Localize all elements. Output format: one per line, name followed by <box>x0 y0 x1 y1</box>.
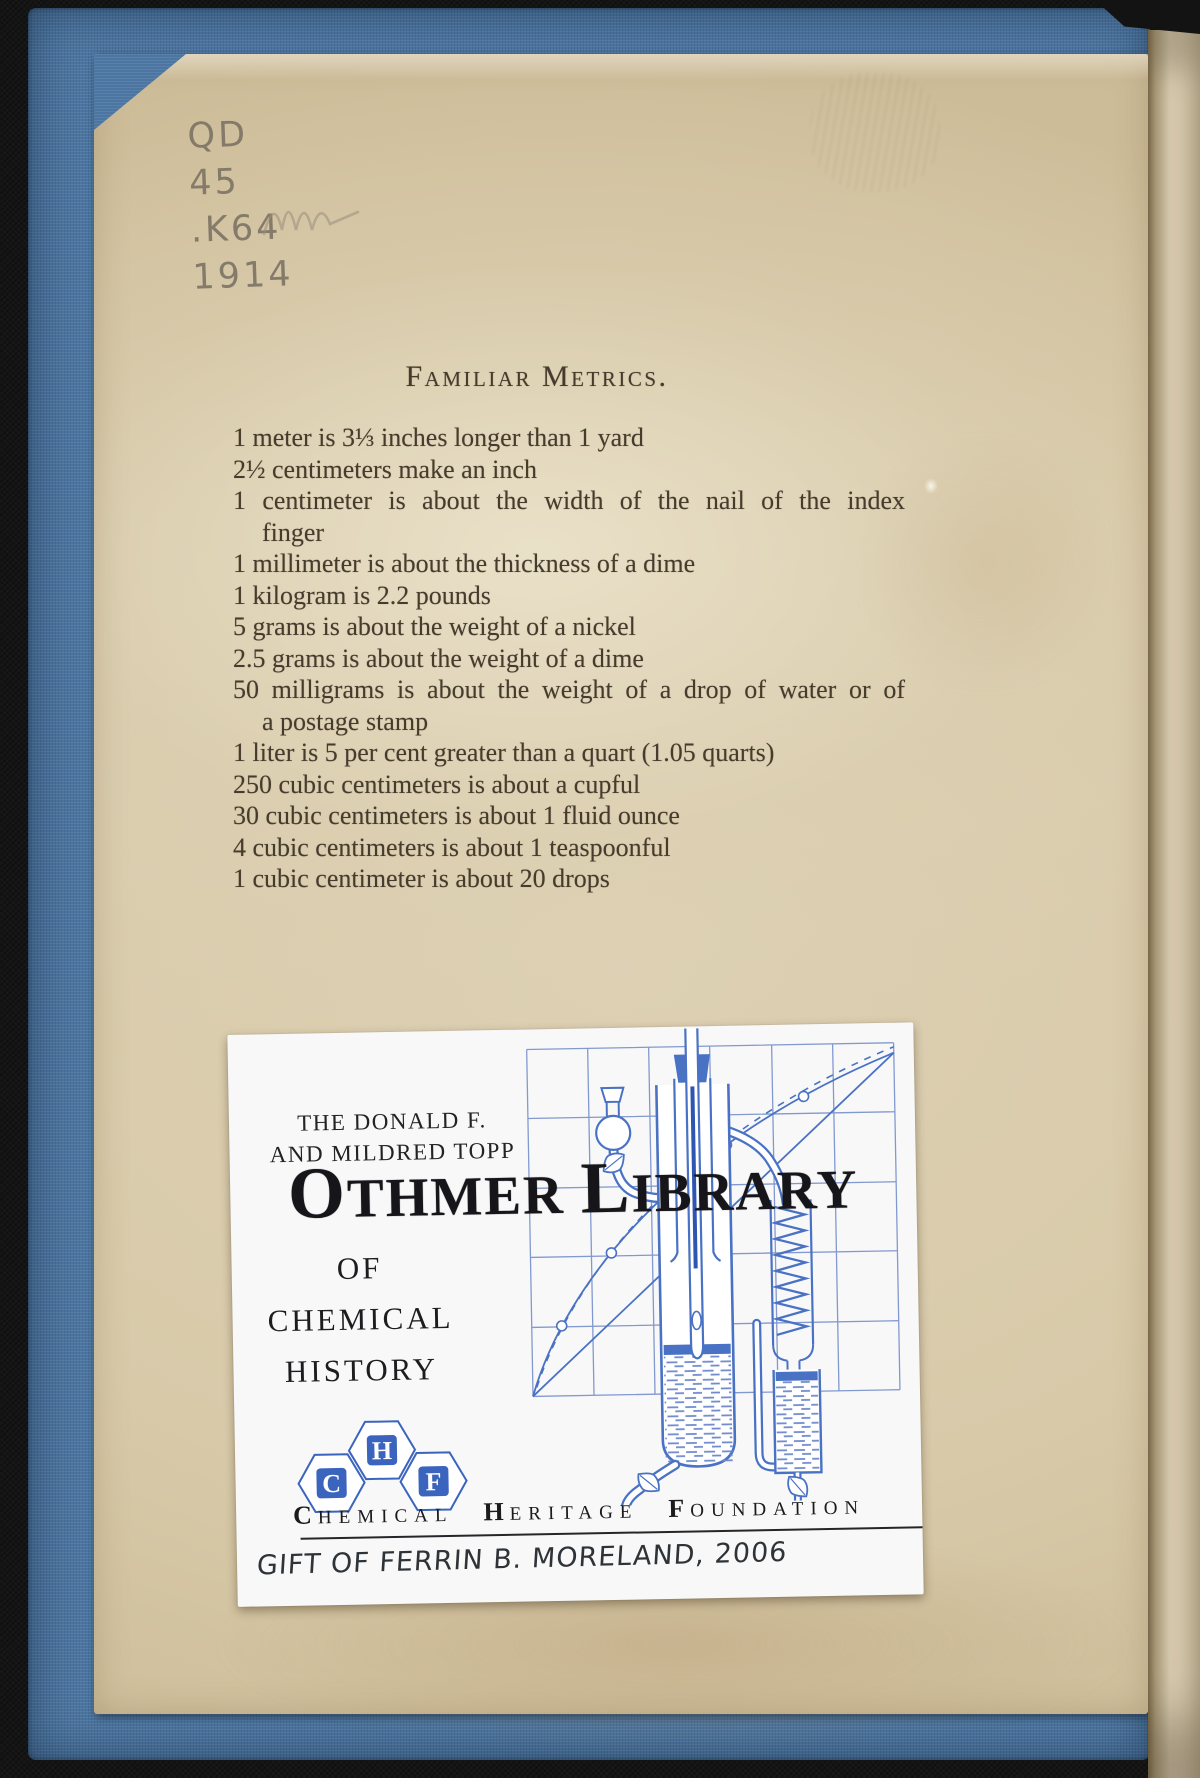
metric-line-continuation: finger <box>233 517 905 549</box>
metric-line: 50 milligrams is about the weight of a d… <box>233 674 905 706</box>
metric-line: 4 cubic centimeters is about 1 teaspoonf… <box>233 832 905 864</box>
metric-line: 30 cubic centimeters is about 1 fluid ou… <box>233 800 905 832</box>
metric-line: 250 cubic centimeters is about a cupful <box>233 769 905 801</box>
title-word: IBRARY <box>631 1158 859 1223</box>
pasted-endpaper-page: QD 45 .K64 1914 Familiar Metrics. 1 mete… <box>94 54 1148 1714</box>
othmer-library-bookplate: THE DONALD F. AND MILDRED TOPP OTHMERLIB… <box>227 1022 923 1606</box>
metric-line: 1 cubic centimeter is about 20 drops <box>233 863 905 895</box>
flyleaf-page-edge <box>1148 30 1200 1778</box>
subtitle-line: OF <box>231 1240 488 1296</box>
bookplate-subtitle: OF CHEMICAL HISTORY <box>231 1240 490 1398</box>
metric-line: 2½ centimeters make an inch <box>233 454 905 486</box>
book-endpaper-photo: QD 45 .K64 1914 Familiar Metrics. 1 mete… <box>0 0 1200 1778</box>
torn-corner <box>94 54 186 130</box>
metric-line-continuation: a postage stamp <box>233 706 905 738</box>
metric-line: 1 millimeter is about the thickness of a… <box>233 548 905 580</box>
metric-line: 5 grams is about the weight of a nickel <box>233 611 905 643</box>
call-number-line: 1914 <box>192 251 295 301</box>
call-number-line: QD <box>187 110 290 160</box>
pencil-squiggle <box>258 188 388 248</box>
org-initial: F <box>668 1494 690 1523</box>
metric-line: 1 meter is 3⅓ inches longer than 1 yard <box>233 422 905 454</box>
page-edge-highlight <box>94 54 1148 80</box>
title-word: THMER <box>346 1164 565 1229</box>
familiar-metrics-section: Familiar Metrics. 1 meter is 3⅓ inches l… <box>233 360 905 895</box>
chemistry-apparatus-illustration <box>515 1022 916 1507</box>
metric-line: 1 kilogram is 2.2 pounds <box>233 580 905 612</box>
metric-line: 1 liter is 5 per cent greater than a qua… <box>233 737 905 769</box>
gift-inscription-handwritten: Gift of Ferrin B. Moreland, 2006 <box>256 1537 788 1581</box>
bookplate-title: OTHMERLIBRARY <box>230 1144 918 1253</box>
metric-line: 2.5 grams is about the weight of a dime <box>233 643 905 675</box>
org-word: ERITAGE <box>510 1502 639 1525</box>
org-word: HEMICAL <box>318 1505 454 1528</box>
title-initial: O <box>287 1152 347 1234</box>
org-initial: H <box>483 1497 510 1526</box>
metric-line: 1 centimeter is about the width of the n… <box>233 485 905 517</box>
org-word: OUNDATION <box>690 1497 865 1521</box>
section-title: Familiar Metrics. <box>233 360 841 394</box>
title-initial: L <box>580 1147 632 1229</box>
logo-letter-f: F <box>425 1467 441 1496</box>
logo-letter-c: C <box>322 1469 341 1498</box>
org-initial: C <box>293 1500 318 1529</box>
logo-letter-h: H <box>372 1436 393 1465</box>
erased-pencil-marks <box>810 72 940 192</box>
subtitle-line: HISTORY <box>233 1342 490 1398</box>
paper-speck <box>924 478 938 494</box>
subtitle-line: CHEMICAL <box>232 1291 489 1347</box>
